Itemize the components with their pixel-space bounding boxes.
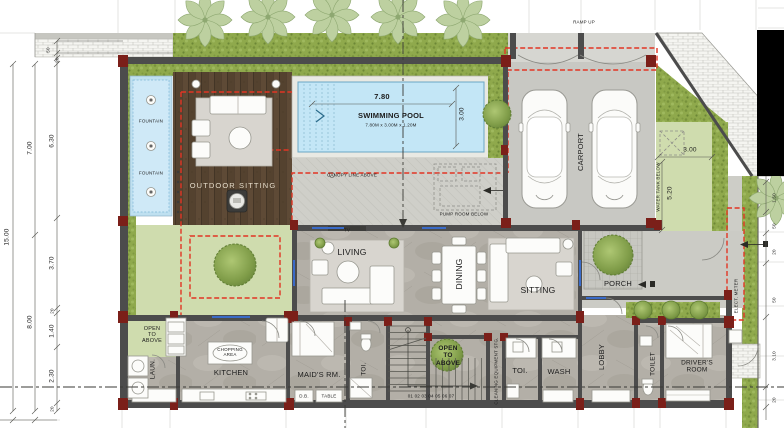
- bush: [634, 301, 652, 319]
- image-void-area: [757, 30, 784, 176]
- bush: [690, 301, 708, 319]
- pool-side-tree: [483, 100, 511, 128]
- terrace: [292, 158, 508, 225]
- car-1: [519, 90, 570, 208]
- car-2: [589, 90, 640, 208]
- floor-plan-canvas: FOUNTAIN FOUNTAIN OUTDOOR SITTING 7.80 S…: [0, 0, 784, 428]
- lawn-tree: [214, 244, 256, 286]
- floor-plan-drawing: [0, 0, 784, 428]
- bush: [662, 301, 680, 319]
- porch-tree: [593, 235, 633, 275]
